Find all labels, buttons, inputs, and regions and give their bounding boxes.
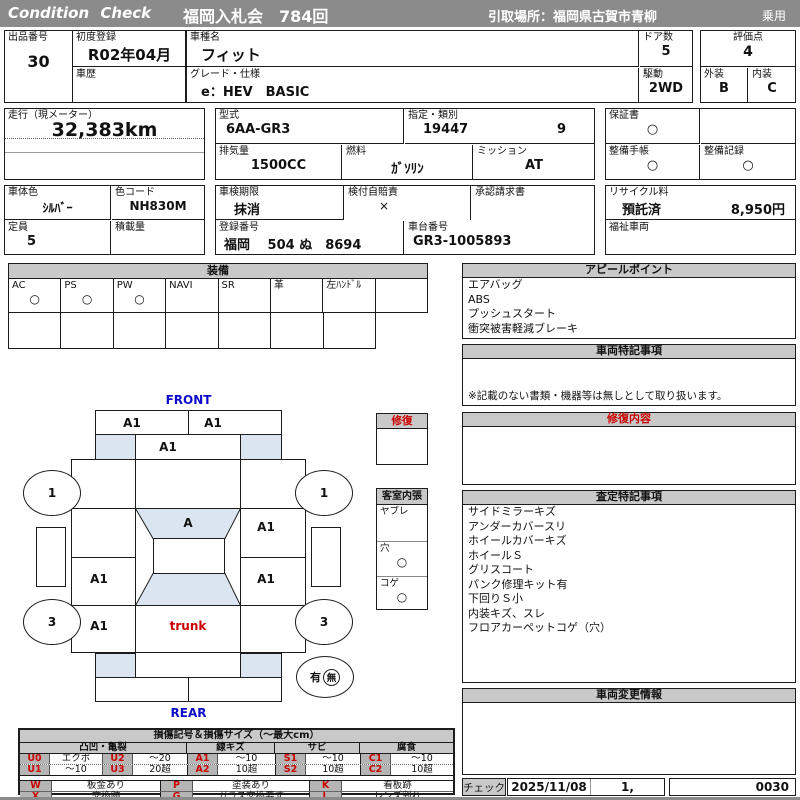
- damage-mark-left-rear-door: A1: [90, 572, 108, 586]
- sheet-code-box: 0030: [669, 778, 796, 796]
- damage-mark-front-bumper-left: A1: [123, 416, 141, 430]
- vehicle-notes-title: 車両特記事項: [463, 345, 795, 359]
- sheet-code: 0030: [670, 779, 795, 794]
- legend-desc: 板金あり: [52, 781, 161, 791]
- recycle-status: 預託済: [622, 199, 661, 218]
- interior-row-tear: ヤブレ: [377, 505, 427, 542]
- spare-absent-label: 無: [323, 669, 340, 686]
- rear-label: REAR: [95, 706, 282, 720]
- check-date-box: 2025/11/08 1,: [507, 778, 665, 796]
- spare-present-label: 有: [310, 669, 321, 685]
- legend-size: 20超: [133, 765, 188, 775]
- score-value: 4: [701, 44, 795, 60]
- interior-grade-value: C: [749, 81, 795, 96]
- repair-content-panel: 修復内容: [462, 412, 796, 485]
- legend-code: A1: [188, 754, 218, 764]
- damage-mark-right-rear-door: A1: [257, 572, 275, 586]
- legend-code: P: [161, 781, 193, 791]
- cabin-interior-box: 客室内張 ヤブレ 穴 ○ コゲ ○: [376, 488, 428, 610]
- legend-desc: 看板跡: [342, 781, 453, 791]
- maintenance-book-label: 整備手帳: [606, 145, 699, 158]
- score-label: 評価点: [701, 31, 795, 44]
- vehicle-category: 乗用: [762, 7, 786, 24]
- assessment-item: グリスコート: [463, 563, 795, 578]
- drive-value: 2WD: [640, 81, 692, 96]
- legend-code: U1: [20, 765, 50, 775]
- approval-request-label: 承認請求書: [472, 186, 594, 199]
- pickup-location: 引取場所：福岡県古賀市青柳: [488, 6, 657, 25]
- legend-code: S2: [276, 765, 306, 775]
- maintenance-record-mark: ○: [701, 158, 795, 173]
- rear-fender-right: [240, 653, 282, 678]
- damage-mark-right-front-door: A1: [257, 520, 275, 534]
- doors-label: ドア数: [640, 31, 692, 44]
- assessment-item: アンダーカバースリ: [463, 520, 795, 535]
- car-diagram: FRONT A1 A1 A1 A A1 A1 A1 A1 trunk: [0, 0, 460, 800]
- check-date: 2025/11/08: [508, 779, 591, 795]
- interior-hole-mark: ○: [377, 555, 427, 569]
- assessment-item: パンク修理キット有: [463, 578, 795, 593]
- assessment-panel: 査定特記事項 サイドミラーキズ アンダーカバースリ ホイールカバーキズ ホイール…: [462, 490, 796, 683]
- legend-code: C2: [361, 765, 391, 775]
- rear-window: [135, 573, 241, 606]
- assessment-item: フロアカーペットコゲ（穴）: [463, 621, 795, 636]
- interior-row-hole: 穴 ○: [377, 542, 427, 577]
- assessment-title: 査定特記事項: [463, 491, 795, 505]
- legend-group-dents: 凸凹・亀裂: [20, 743, 187, 753]
- vehicle-notes-disclaimer: ※記載のない書類・機器等は無しとして取り扱います。: [463, 389, 732, 404]
- hood: [135, 434, 241, 460]
- legend-size: 10超: [306, 765, 361, 775]
- damage-legend: 損傷記号＆損傷サイズ（～最大cm） 凸凹・亀裂 線キズ サビ 腐食 U0 エクボ…: [18, 728, 455, 795]
- appeal-item: 衝突被害軽減ブレーキ: [463, 322, 795, 337]
- appeal-item: ABS: [463, 293, 795, 308]
- front-label: FRONT: [95, 393, 282, 407]
- appeal-item: プッシュスタート: [463, 307, 795, 322]
- roof: [153, 538, 225, 574]
- interior-grade-label: 内装: [749, 68, 795, 81]
- legend-group-corrosion: 腐食: [360, 743, 453, 753]
- cabin-interior-title: 客室内張: [377, 489, 427, 505]
- legend-code: W: [20, 781, 52, 791]
- repair-flag-title: 修復: [377, 414, 427, 429]
- assessment-item: 下回りＳ小: [463, 592, 795, 607]
- recycle-fee-value: 8,950円: [731, 199, 785, 218]
- rear-fender-left: [95, 653, 136, 678]
- legend-size: 10超: [218, 765, 276, 775]
- interior-row-burn: コゲ ○: [377, 577, 427, 611]
- legend-size: ～10: [306, 754, 361, 764]
- wheel-front-left: 1: [23, 470, 81, 516]
- doors-value: 5: [640, 44, 692, 59]
- recycle-box: リサイクル料 預託済 8,950円 福祉車両: [605, 185, 796, 255]
- transmission-label: ミッション: [474, 145, 594, 158]
- vehicle-changes-panel: 車両変更情報: [462, 688, 796, 775]
- wheel-front-right: 1: [295, 470, 353, 516]
- assessment-item: ホイールＳ: [463, 549, 795, 564]
- check-label-cell: チェック: [462, 778, 506, 796]
- exterior-grade-label: 外装: [701, 68, 747, 81]
- legend-size: ～10: [50, 765, 103, 775]
- damage-mark-front-bumper-right: A1: [204, 416, 222, 430]
- front-fender-right: [240, 434, 282, 460]
- legend-code: U0: [20, 754, 50, 764]
- front-fender-left: [95, 434, 136, 460]
- legend-size: ～10: [218, 754, 276, 764]
- trunk-label: trunk: [170, 619, 207, 633]
- legend-code: S1: [276, 754, 306, 764]
- exterior-grade-value: B: [701, 81, 747, 96]
- legend-code: K: [310, 781, 342, 791]
- transmission-value: AT: [474, 158, 594, 173]
- legend-group-scratch: 線キズ: [187, 743, 275, 753]
- books-box: 保証書 ○ 整備手帳 ○ 整備記録 ○: [605, 108, 796, 180]
- legend-size: ～10: [391, 754, 453, 764]
- appeal-panel: アピールポイント エアバッグ ABS プッシュスタート 衝突被害軽減ブレーキ: [462, 263, 796, 339]
- warranty-label: 保証書: [606, 109, 699, 122]
- class-value-2: 9: [557, 122, 566, 137]
- drive-label: 駆動: [640, 68, 692, 81]
- welfare-vehicle-label: 福祉車両: [606, 221, 795, 234]
- appeal-item: エアバッグ: [463, 278, 795, 293]
- repair-content-title: 修復内容: [463, 413, 795, 427]
- legend-size: エクボ: [50, 754, 103, 764]
- legend-desc: 塗装あり: [193, 781, 310, 791]
- legend-code: U2: [103, 754, 133, 764]
- score-box: 評価点 4 外装 B 内装 C: [700, 30, 796, 103]
- left-side-panel: [36, 527, 66, 587]
- recycle-fee-label: リサイクル料: [606, 186, 795, 199]
- warranty-mark: ○: [606, 122, 699, 137]
- legend-code: U3: [103, 765, 133, 775]
- legend-size: ～20: [133, 754, 188, 764]
- legend-group-rust: サビ: [275, 743, 360, 753]
- legend-code: C1: [361, 754, 391, 764]
- damage-mark-windshield: A: [183, 516, 192, 530]
- damage-mark-hood: A1: [159, 440, 177, 454]
- damage-mark-left-quarter: A1: [90, 619, 108, 633]
- repair-flag-box: 修復: [376, 413, 428, 465]
- interior-burn-mark: ○: [377, 590, 427, 604]
- check-count: 1,: [591, 779, 664, 795]
- vehicle-changes-title: 車両変更情報: [463, 689, 795, 703]
- assessment-item: ホイールカバーキズ: [463, 534, 795, 549]
- maintenance-book-mark: ○: [606, 158, 699, 173]
- assessment-item: 内装キズ、スレ: [463, 607, 795, 622]
- spare-tire-indicator: 有 無: [296, 656, 354, 698]
- wheel-rear-right: 3: [295, 599, 353, 645]
- condition-check-sheet: Condition Check 福岡入札会 784回 引取場所：福岡県古賀市青柳…: [0, 0, 800, 800]
- assessment-item: サイドミラーキズ: [463, 505, 795, 520]
- vehicle-notes-panel: 車両特記事項 ※記載のない書類・機器等は無しとして取り扱います。: [462, 344, 796, 406]
- appeal-title: アピールポイント: [463, 264, 795, 278]
- legend-code: A2: [188, 765, 218, 775]
- legend-size: 10超: [391, 765, 453, 775]
- maintenance-record-label: 整備記録: [701, 145, 795, 158]
- right-side-panel: [311, 527, 341, 587]
- wheel-rear-left: 3: [23, 599, 81, 645]
